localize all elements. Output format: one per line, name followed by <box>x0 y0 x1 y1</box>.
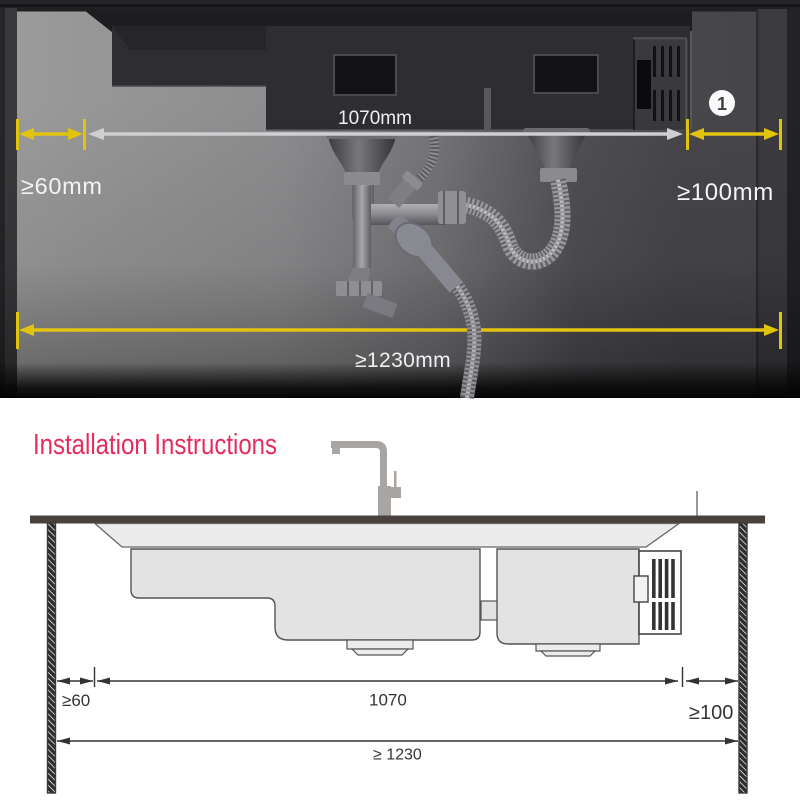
svg-text:≥60: ≥60 <box>62 691 90 710</box>
svg-text:1070mm: 1070mm <box>338 108 412 129</box>
svg-text:≥60mm: ≥60mm <box>21 173 103 199</box>
svg-text:≥100: ≥100 <box>689 702 733 724</box>
svg-text:≥ 1230: ≥ 1230 <box>373 747 422 764</box>
svg-text:≥100mm: ≥100mm <box>677 179 774 206</box>
svg-text:1070: 1070 <box>369 691 407 710</box>
svg-text:≥1230mm: ≥1230mm <box>355 349 451 372</box>
svg-text:1: 1 <box>717 94 727 114</box>
svg-text:Installation Instructions: Installation Instructions <box>33 429 277 461</box>
